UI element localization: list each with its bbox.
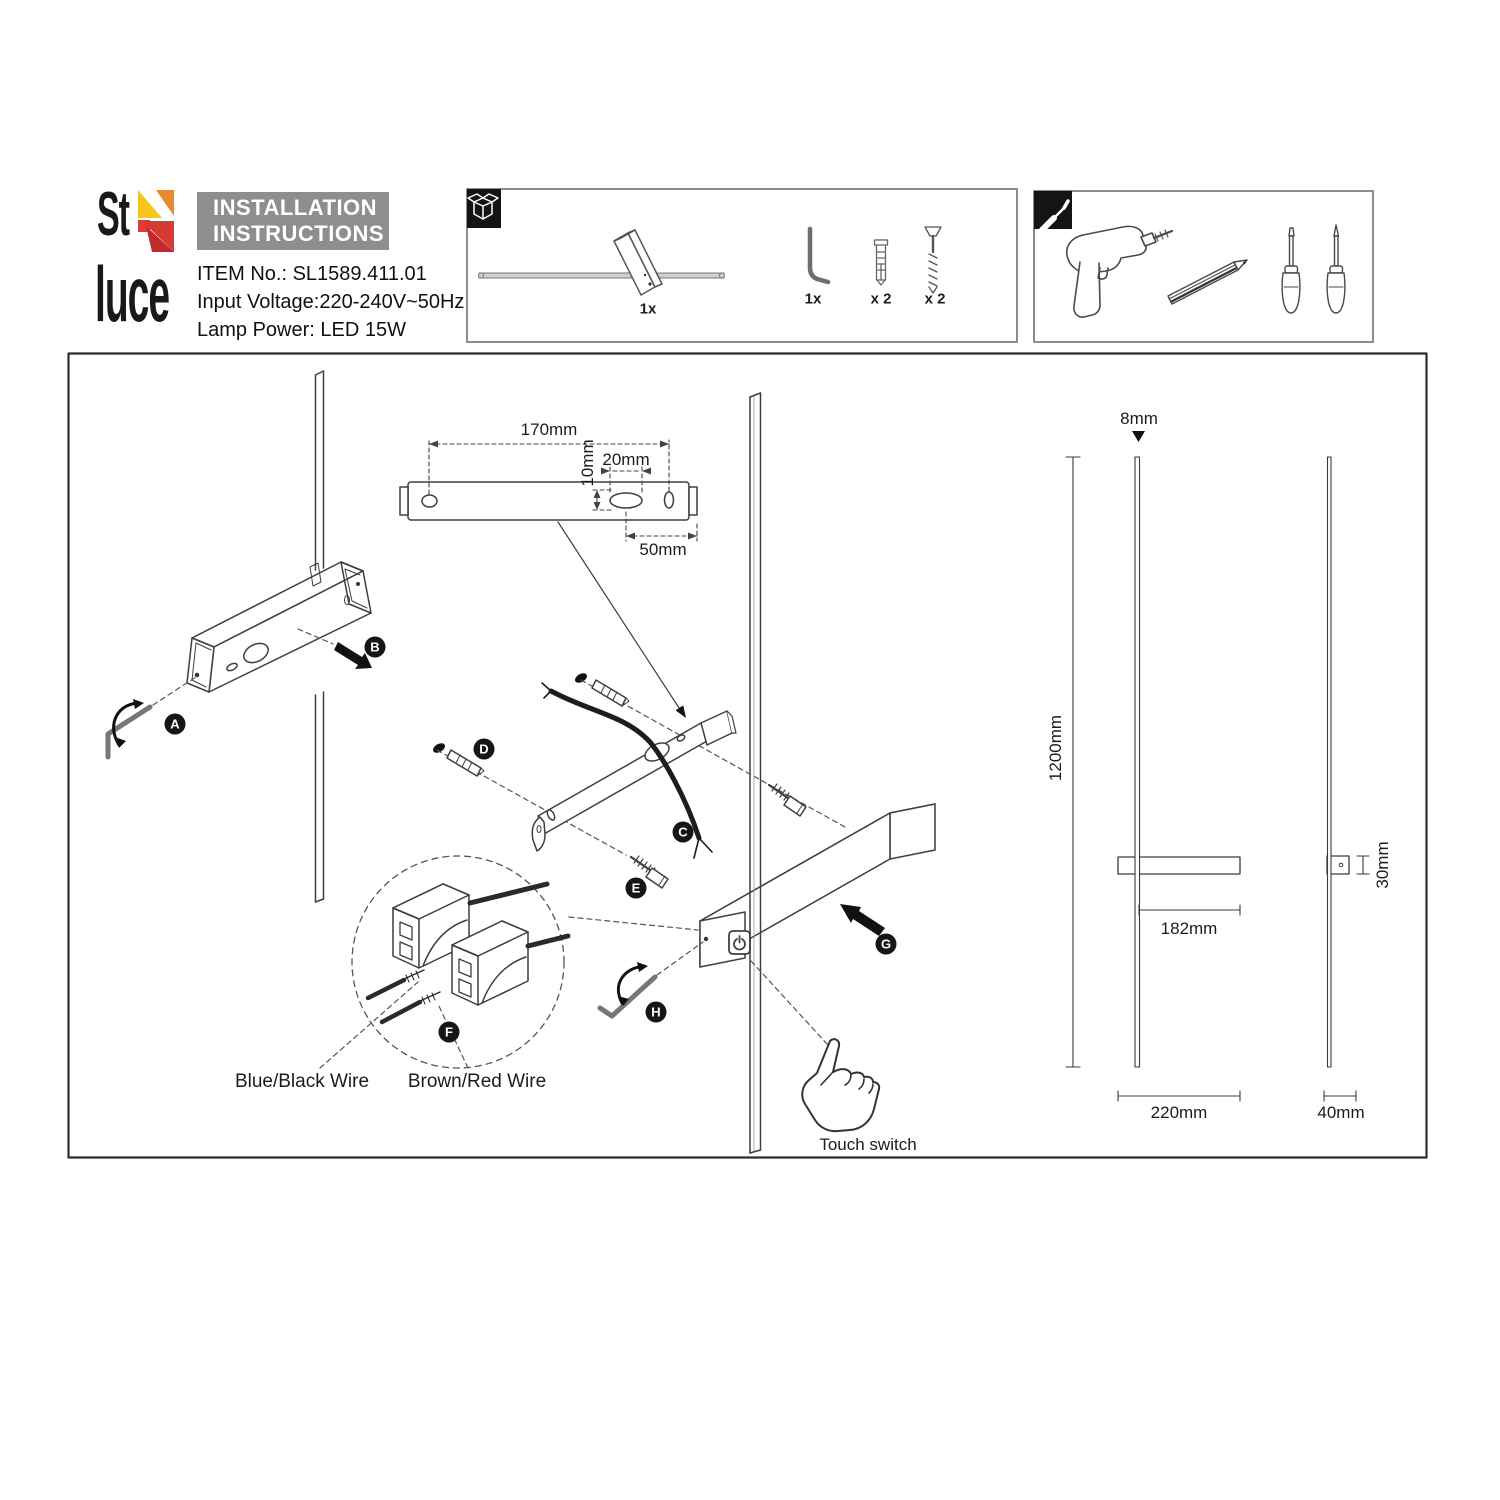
hex-key-qty: 1x: [805, 291, 822, 308]
phillips-screwdriver-icon: [1327, 225, 1345, 313]
dim-220mm: 220mm: [1151, 1103, 1208, 1123]
dim-1200mm: 1200mm: [1046, 715, 1066, 781]
touch-leader: [751, 961, 828, 1045]
step-badge-a: A: [165, 714, 186, 735]
screw-qty: x 2: [925, 291, 946, 308]
power-icon: [729, 931, 750, 954]
lamp-qty: 1x: [640, 301, 657, 318]
lamp-power: Lamp Power: LED 15W: [197, 319, 406, 342]
bracket-drawing: [400, 482, 697, 520]
dim-40mm: 40mm: [1317, 1103, 1364, 1123]
step-badge-g: G: [876, 934, 897, 955]
wall-hole-icon: [431, 741, 446, 754]
logo-text-st: St: [97, 184, 129, 246]
wall-plug-icon: [875, 240, 888, 285]
hex-key-a-icon: [108, 699, 150, 757]
dim-50mm: 50mm: [639, 540, 686, 560]
installation-sheet: St luce INSTALLATION INSTRUCTIONS ITEM N…: [0, 0, 1500, 1500]
dim-182mm: 182mm: [1161, 919, 1218, 939]
brown-red-wire-label: Brown/Red Wire: [408, 1071, 546, 1093]
hex-key-icon: [810, 229, 828, 282]
item-number: ITEM No.: SL1589.411.01: [197, 263, 427, 286]
anchor-qty: x 2: [871, 291, 892, 308]
wall-hole-icon: [573, 671, 588, 684]
wire-label-leader: [320, 982, 418, 1068]
step-badge-b: B: [365, 637, 386, 658]
dim-8mm: 8mm: [1120, 409, 1158, 429]
input-voltage: Input Voltage:220-240V~50Hz: [197, 291, 464, 314]
flat-screwdriver-icon: [1282, 228, 1300, 313]
dim-20mm: 20mm: [602, 450, 649, 470]
step-badge-f: F: [439, 1022, 460, 1043]
title-banner: INSTALLATION INSTRUCTIONS: [197, 192, 389, 250]
step-badge-e: E: [626, 878, 647, 899]
wall-rod-right: [750, 393, 761, 1153]
dim-170mm: 170mm: [521, 420, 578, 440]
logo-text-luce: luce: [95, 255, 169, 333]
title-line2: INSTRUCTIONS: [213, 221, 389, 247]
logo-mark: [138, 190, 174, 252]
lamp-body-left: [187, 562, 371, 692]
screw-c-icon: [769, 784, 806, 816]
touch-hand-icon: [802, 1039, 879, 1131]
arrow-g-icon: [840, 904, 885, 936]
step-badge-h: H: [646, 1002, 667, 1023]
dimension-views: [1066, 431, 1369, 1101]
title-line1: INSTALLATION: [213, 195, 389, 221]
pencil-icon: [1168, 260, 1247, 304]
step-badge-c: C: [673, 822, 694, 843]
drill-icon: [1067, 226, 1172, 317]
dim-30mm: 30mm: [1373, 841, 1393, 888]
touch-switch-label: Touch switch: [819, 1135, 916, 1155]
lamp-item-icon: [479, 230, 725, 295]
mounting-bracket: [532, 711, 736, 851]
step-badge-d: D: [474, 739, 495, 760]
detail-leader: [569, 917, 698, 930]
screw-icon: [925, 227, 941, 293]
anchor-plug-icon: [592, 680, 629, 706]
blue-black-wire-label: Blue/Black Wire: [235, 1071, 369, 1093]
guide-dash-h: [657, 942, 703, 975]
dim-10mm: 10mm: [578, 439, 598, 486]
